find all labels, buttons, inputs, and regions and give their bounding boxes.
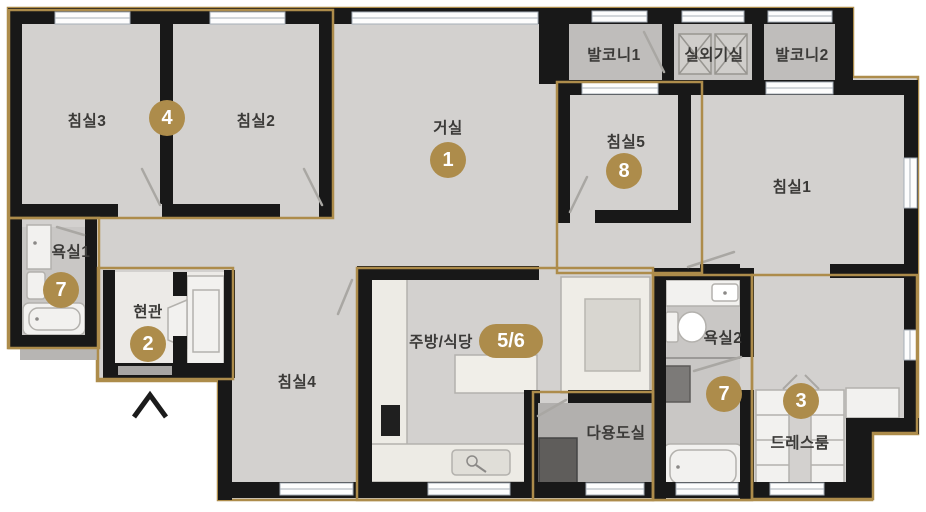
room-label-bedroom1: 침실1 [773, 175, 812, 197]
room-label-dressroom: 드레스룸 [770, 431, 829, 453]
floorplan-stage: 침실3 침실2 거실 발코니1 실외기실 발코니2 침실5 침실1 욕실1 현관… [0, 0, 926, 512]
zone-badge-bedroom5[interactable]: 8 [606, 153, 642, 189]
entry-door-sill [118, 366, 172, 375]
utility-washer [539, 438, 577, 484]
entrance-direction-icon [134, 395, 166, 417]
room-label-living: 거실 [433, 116, 463, 138]
room-label-bedroom5: 침실5 [607, 130, 646, 152]
room-label-kitchen: 주방/식당 [409, 330, 473, 352]
bath1-sink [27, 225, 51, 269]
bath2-toilet [666, 312, 678, 342]
room-label-machine-room: 실외기실 [684, 43, 743, 65]
zone-badge-bath1[interactable]: 7 [43, 272, 79, 308]
room-label-balcony1: 발코니1 [587, 43, 640, 65]
kitchen-island [455, 355, 537, 393]
zone-badge-kitchen[interactable]: 5/6 [479, 324, 543, 358]
entry-step [20, 348, 97, 360]
bath1-toilet [27, 272, 45, 299]
room-label-bath2: 욕실2 [704, 326, 743, 348]
room-label-bedroom4: 침실4 [278, 370, 317, 392]
room-label-bedroom2: 침실2 [237, 109, 276, 131]
dining-table [585, 299, 640, 371]
kitchen-sink [452, 450, 510, 475]
zone-badge-bedrooms23[interactable]: 4 [149, 100, 185, 136]
bedroom1-closet [846, 388, 899, 418]
zone-badge-living[interactable]: 1 [430, 142, 466, 178]
room-label-utility: 다용도실 [586, 421, 645, 443]
kitchen-appliance [381, 405, 400, 436]
room-label-bedroom3: 침실3 [68, 109, 107, 131]
room-label-entry: 현관 [133, 300, 163, 322]
zone-badge-entry[interactable]: 2 [130, 326, 166, 362]
room-label-bath1: 욕실1 [52, 240, 91, 262]
zone-badge-dressroom[interactable]: 3 [783, 383, 819, 419]
zone-badge-bath2[interactable]: 7 [706, 376, 742, 412]
room-label-balcony2: 발코니2 [775, 43, 828, 65]
